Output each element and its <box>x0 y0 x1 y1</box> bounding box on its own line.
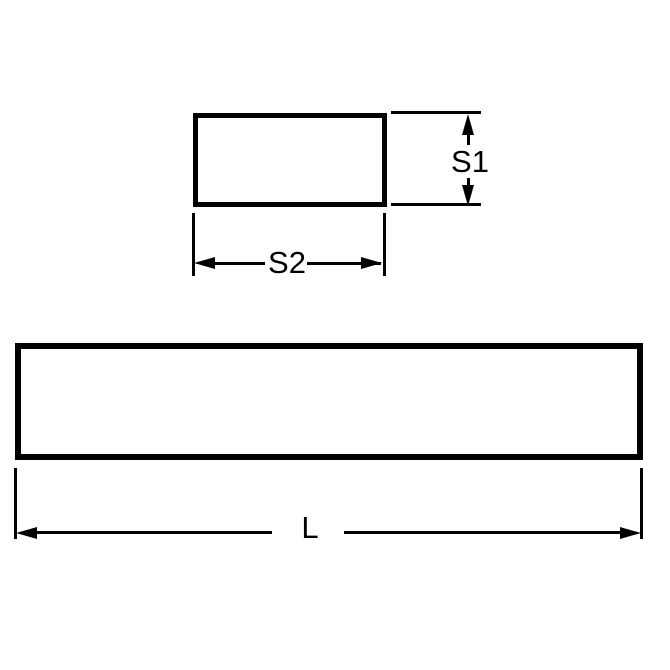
l-dimension-line-right <box>344 531 634 534</box>
cross-section-rectangle <box>193 113 387 207</box>
side-view-rectangle <box>15 343 643 460</box>
s2-extension-line-right <box>383 213 386 276</box>
l-dimension-line-left <box>32 531 272 534</box>
s2-arrowhead-right <box>361 257 382 269</box>
s2-label: S2 <box>265 246 309 280</box>
l-arrowhead-right <box>620 527 641 539</box>
l-label: L <box>298 511 321 545</box>
s2-dimension-line-left <box>210 262 268 265</box>
s1-label: S1 <box>448 145 492 179</box>
s1-arrowhead-down <box>462 185 474 206</box>
technical-drawing: S1 S2 L <box>0 0 670 670</box>
